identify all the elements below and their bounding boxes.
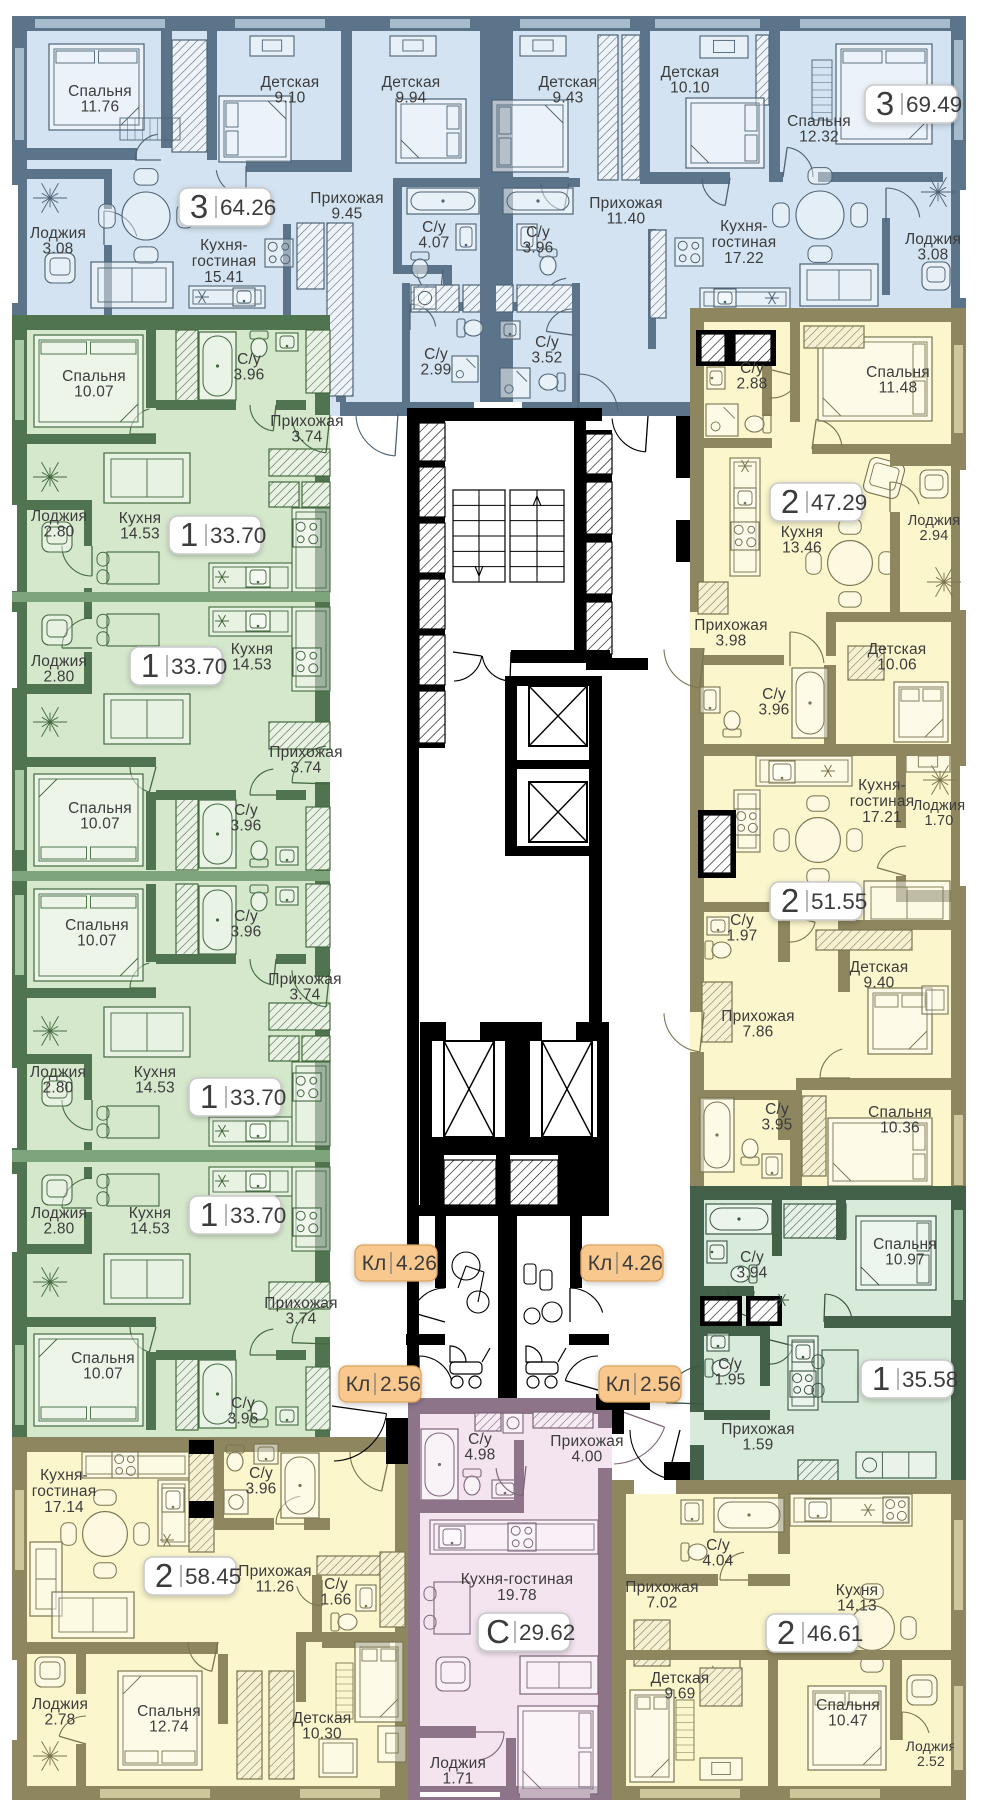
svg-text:Спальня: Спальня [62, 368, 126, 385]
svg-text:12.74: 12.74 [149, 1719, 189, 1736]
svg-text:С/у: С/у [740, 360, 764, 377]
svg-text:Кухня-: Кухня- [40, 1467, 88, 1484]
svg-text:9.69: 9.69 [665, 1686, 696, 1703]
svg-text:7.86: 7.86 [743, 1024, 774, 1041]
svg-text:С/у: С/у [730, 912, 754, 929]
svg-text:Спальня: Спальня [868, 1104, 932, 1121]
svg-text:3.96: 3.96 [246, 1481, 277, 1498]
svg-text:11.48: 11.48 [879, 380, 918, 397]
svg-text:Детская: Детская [651, 1670, 710, 1687]
svg-text:С/у: С/у [740, 1249, 764, 1266]
svg-text:Кухня-гостиная: Кухня-гостиная [461, 1571, 573, 1588]
svg-text:14.53: 14.53 [130, 1221, 170, 1238]
svg-text:Кухня-: Кухня- [200, 237, 248, 254]
svg-text:Прихожая: Прихожая [310, 190, 383, 207]
svg-text:С/у: С/у [468, 1431, 492, 1448]
svg-text:Детская: Детская [539, 74, 598, 91]
svg-text:2.80: 2.80 [44, 669, 75, 686]
svg-text:Прихожая: Прихожая [238, 1563, 311, 1580]
svg-text:4.04: 4.04 [703, 1553, 734, 1570]
svg-text:Прихожая: Прихожая [589, 195, 662, 212]
svg-text:14.53: 14.53 [232, 657, 272, 674]
svg-text:Спальня: Спальня [68, 83, 132, 100]
svg-text:Прихожая: Прихожая [269, 744, 342, 761]
svg-text:58.45: 58.45 [185, 1564, 241, 1589]
svg-text:Прихожая: Прихожая [721, 1008, 794, 1025]
svg-text:С/у: С/у [324, 1576, 348, 1593]
svg-text:46.61: 46.61 [807, 1621, 863, 1646]
svg-text:гостиная: гостиная [32, 1483, 97, 1500]
svg-text:3.96: 3.96 [234, 367, 265, 384]
svg-text:Кухня: Кухня [129, 1205, 171, 1222]
svg-text:Лоджия: Лоджия [31, 1205, 87, 1222]
svg-text:С/у: С/у [234, 802, 258, 819]
svg-text:47.29: 47.29 [811, 490, 867, 515]
svg-text:2.94: 2.94 [919, 528, 948, 544]
svg-text:гостиная: гостиная [850, 793, 915, 810]
svg-text:Лоджия: Лоджия [430, 1755, 486, 1772]
svg-text:7.02: 7.02 [647, 1595, 678, 1612]
svg-text:2: 2 [777, 1614, 795, 1651]
svg-text:14.13: 14.13 [837, 1598, 877, 1615]
svg-text:Детская: Детская [293, 1710, 352, 1727]
svg-text:Спальня: Спальня [71, 1350, 135, 1367]
svg-text:Прихожая: Прихожая [270, 413, 343, 430]
svg-text:Спальня: Спальня [787, 113, 851, 130]
svg-text:гостиная: гостиная [712, 234, 777, 251]
svg-text:1.97: 1.97 [727, 928, 758, 945]
svg-text:1: 1 [180, 516, 198, 553]
svg-text:3.74: 3.74 [292, 429, 323, 446]
svg-text:10.47: 10.47 [828, 1713, 868, 1730]
svg-text:Кл: Кл [606, 1373, 631, 1396]
svg-text:Детская: Детская [261, 74, 320, 91]
svg-text:10.30: 10.30 [302, 1726, 342, 1743]
svg-text:Спальня: Спальня [65, 917, 129, 934]
svg-text:33.70: 33.70 [230, 1203, 286, 1228]
svg-text:69.49: 69.49 [906, 92, 962, 117]
svg-text:Кл: Кл [588, 1252, 613, 1275]
svg-text:1: 1 [200, 1196, 218, 1233]
svg-text:11.40: 11.40 [607, 211, 646, 228]
svg-text:Детская: Детская [868, 641, 927, 658]
svg-text:Прихожая: Прихожая [721, 1421, 794, 1438]
svg-text:19.78: 19.78 [497, 1587, 537, 1604]
svg-text:С/у: С/у [765, 1101, 789, 1118]
svg-text:11.26: 11.26 [256, 1579, 295, 1596]
svg-text:3.08: 3.08 [43, 241, 74, 258]
svg-text:Прихожая: Прихожая [694, 617, 767, 634]
svg-text:С/у: С/у [237, 351, 261, 368]
svg-text:1.71: 1.71 [443, 1771, 474, 1788]
svg-text:17.21: 17.21 [862, 809, 902, 826]
svg-text:Детская: Детская [850, 959, 909, 976]
svg-text:3.98: 3.98 [716, 633, 747, 650]
svg-text:1: 1 [141, 647, 159, 684]
svg-text:9.45: 9.45 [332, 206, 363, 223]
svg-text:1.59: 1.59 [743, 1437, 774, 1454]
svg-text:15.41: 15.41 [204, 269, 244, 286]
svg-text:Лоджия: Лоджия [906, 1738, 957, 1754]
svg-text:17.22: 17.22 [724, 250, 764, 267]
svg-text:С/у: С/у [424, 346, 448, 363]
svg-text:3.96: 3.96 [228, 1411, 259, 1428]
svg-text:С/у: С/у [234, 908, 258, 925]
svg-text:Кухня: Кухня [836, 1582, 878, 1599]
svg-text:Кл: Кл [362, 1252, 387, 1275]
svg-text:3.74: 3.74 [291, 760, 322, 777]
svg-text:4.98: 4.98 [465, 1447, 496, 1464]
svg-text:10.07: 10.07 [83, 1366, 123, 1383]
svg-text:Спальня: Спальня [137, 1703, 201, 1720]
svg-text:1: 1 [872, 1360, 890, 1397]
svg-text:14.53: 14.53 [120, 526, 160, 543]
svg-text:2.56: 2.56 [380, 1373, 421, 1396]
svg-text:3.96: 3.96 [231, 818, 262, 835]
svg-text:Кл: Кл [346, 1373, 371, 1396]
svg-text:3.95: 3.95 [762, 1117, 793, 1134]
svg-text:Спальня: Спальня [873, 1236, 937, 1253]
svg-text:Спальня: Спальня [68, 800, 132, 817]
svg-text:3.08: 3.08 [918, 247, 949, 264]
svg-text:С/у: С/у [535, 334, 559, 351]
svg-text:10.06: 10.06 [877, 657, 917, 674]
svg-text:4.26: 4.26 [622, 1252, 663, 1275]
svg-text:3.74: 3.74 [290, 987, 321, 1004]
svg-text:1.95: 1.95 [715, 1372, 746, 1389]
svg-text:Прихожая: Прихожая [264, 1295, 337, 1312]
svg-text:35.58: 35.58 [902, 1367, 958, 1392]
svg-text:С/у: С/у [706, 1537, 730, 1554]
svg-text:Лоджия: Лоджия [31, 508, 87, 525]
svg-text:1: 1 [200, 1078, 218, 1115]
svg-text:4.26: 4.26 [396, 1252, 437, 1275]
svg-text:Спальня: Спальня [816, 1697, 880, 1714]
svg-text:С/у: С/у [718, 1356, 742, 1373]
svg-text:Лоджия: Лоджия [31, 653, 87, 670]
svg-text:51.55: 51.55 [811, 889, 867, 914]
svg-text:Лоджия: Лоджия [30, 225, 86, 242]
svg-text:3.96: 3.96 [231, 924, 262, 941]
svg-text:гостиная: гостиная [192, 253, 257, 270]
svg-text:13.46: 13.46 [782, 540, 822, 557]
svg-text:Детская: Детская [661, 64, 720, 81]
svg-text:12.32: 12.32 [799, 129, 839, 146]
svg-text:10.07: 10.07 [77, 933, 117, 950]
svg-text:64.26: 64.26 [220, 195, 276, 220]
svg-text:Лоджия: Лоджия [913, 798, 966, 814]
svg-text:2.80: 2.80 [44, 524, 75, 541]
svg-text:Кухня-: Кухня- [858, 777, 906, 794]
svg-text:С/у: С/у [231, 1395, 255, 1412]
svg-text:С/у: С/у [422, 219, 446, 236]
svg-text:С/у: С/у [249, 1465, 273, 1482]
svg-text:Спальня: Спальня [866, 364, 930, 381]
svg-text:9.40: 9.40 [864, 975, 895, 992]
svg-text:2.80: 2.80 [44, 1221, 75, 1238]
svg-text:2.99: 2.99 [421, 362, 452, 379]
svg-text:3.96: 3.96 [523, 240, 554, 257]
svg-text:Кухня: Кухня [231, 641, 273, 658]
svg-text:14.53: 14.53 [135, 1080, 175, 1097]
svg-text:3: 3 [190, 188, 208, 225]
svg-text:2: 2 [781, 483, 799, 520]
svg-text:Кухня: Кухня [781, 524, 823, 541]
svg-text:Лоджия: Лоджия [908, 513, 961, 529]
svg-text:9.94: 9.94 [396, 90, 427, 107]
svg-text:Детская: Детская [382, 74, 441, 91]
svg-text:С: С [486, 1613, 510, 1650]
svg-text:2.80: 2.80 [43, 1080, 74, 1097]
svg-text:1.70: 1.70 [924, 813, 953, 829]
svg-text:Кухня-: Кухня- [720, 218, 768, 235]
svg-text:3.94: 3.94 [737, 1265, 768, 1282]
svg-text:Прихожая: Прихожая [268, 971, 341, 988]
svg-text:Прихожая: Прихожая [625, 1579, 698, 1596]
svg-text:Лоджия: Лоджия [905, 231, 961, 248]
svg-text:2: 2 [781, 882, 799, 919]
svg-text:3.74: 3.74 [286, 1311, 317, 1328]
svg-text:29.62: 29.62 [519, 1620, 575, 1645]
svg-text:4.00: 4.00 [572, 1449, 603, 1466]
svg-text:3.96: 3.96 [759, 702, 790, 719]
svg-text:11.76: 11.76 [81, 99, 120, 116]
svg-text:2.88: 2.88 [737, 376, 768, 393]
svg-text:Кухня: Кухня [134, 1064, 176, 1081]
svg-text:С/у: С/у [762, 686, 786, 703]
svg-text:2: 2 [155, 1557, 173, 1594]
svg-text:33.70: 33.70 [210, 523, 266, 548]
svg-text:9.43: 9.43 [553, 90, 584, 107]
svg-text:10.36: 10.36 [880, 1120, 920, 1137]
svg-text:С/у: С/у [526, 224, 550, 241]
svg-text:Лоджия: Лоджия [30, 1064, 86, 1081]
svg-text:Кухня: Кухня [119, 510, 161, 527]
svg-text:9.10: 9.10 [275, 90, 306, 107]
svg-text:4.07: 4.07 [419, 235, 450, 252]
svg-text:10.07: 10.07 [74, 384, 114, 401]
svg-text:Прихожая: Прихожая [550, 1433, 623, 1450]
svg-text:33.70: 33.70 [230, 1085, 286, 1110]
svg-text:2.78: 2.78 [45, 1712, 76, 1729]
svg-text:3: 3 [876, 85, 894, 122]
svg-text:Лоджия: Лоджия [32, 1696, 88, 1713]
svg-text:33.70: 33.70 [171, 654, 227, 679]
svg-text:2.56: 2.56 [640, 1373, 681, 1396]
svg-text:3.52: 3.52 [532, 350, 563, 367]
svg-text:2.52: 2.52 [917, 1753, 945, 1769]
svg-text:17.14: 17.14 [44, 1499, 84, 1516]
svg-text:1.66: 1.66 [321, 1592, 352, 1609]
svg-text:10.97: 10.97 [885, 1252, 925, 1269]
svg-text:10.07: 10.07 [80, 816, 120, 833]
svg-text:10.10: 10.10 [670, 80, 710, 97]
